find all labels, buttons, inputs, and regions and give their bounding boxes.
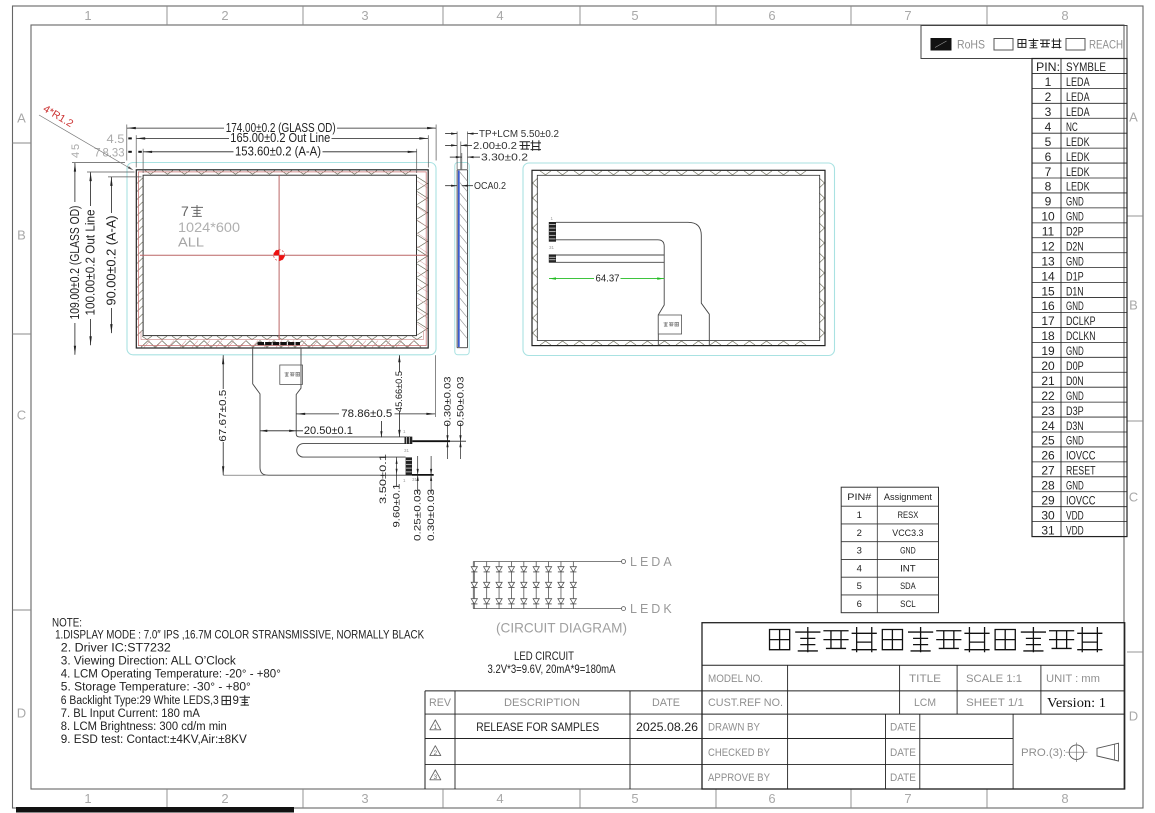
svg-text:5: 5 [1045,135,1052,149]
svg-text:15: 15 [1041,284,1055,298]
svg-text:GND: GND [1066,254,1084,268]
svg-text:Assignment: Assignment [884,492,932,503]
svg-text:2: 2 [433,750,437,757]
svg-text:16: 16 [1041,299,1055,313]
svg-text:RELEASE FOR SAMPLES: RELEASE FOR SAMPLES [476,722,599,734]
svg-text:D2P: D2P [1066,225,1084,239]
svg-text:31: 31 [412,477,418,482]
svg-text:3: 3 [1045,105,1052,119]
svg-text:8: 8 [1061,8,1068,23]
svg-text:20.50±0.1: 20.50±0.1 [304,425,353,437]
svg-text:INT: INT [900,563,916,574]
svg-text:18: 18 [1041,329,1055,343]
svg-text:3: 3 [857,546,862,557]
svg-text:GND: GND [1066,299,1084,313]
svg-text:2: 2 [857,528,862,539]
svg-text:8.33: 8.33 [103,146,125,160]
svg-text:8: 8 [1061,791,1068,806]
svg-text:IOVCC: IOVCC [1066,449,1096,463]
svg-text:LEDK: LEDK [1066,180,1090,194]
svg-text:7: 7 [181,203,189,219]
svg-text:Version: 1: Version: 1 [1047,695,1106,710]
svg-text:D1P: D1P [1066,269,1084,283]
svg-text:26: 26 [1041,449,1055,463]
svg-text:5: 5 [631,8,638,23]
svg-text:GND: GND [1066,195,1084,209]
svg-text:4.5: 4.5 [107,132,125,146]
svg-text:19: 19 [1041,344,1055,358]
svg-text:LEDA: LEDA [630,555,675,569]
svg-text:OCA0.2: OCA0.2 [474,181,506,192]
svg-text:3.50±0.1: 3.50±0.1 [378,454,388,504]
svg-text:GND: GND [1066,389,1084,403]
svg-text:D1N: D1N [1066,284,1084,298]
svg-text:SDA: SDA [900,581,916,592]
svg-text:DATE: DATE [890,722,916,734]
svg-text:D: D [1129,709,1138,724]
svg-text:6: 6 [768,8,775,23]
svg-text:LCM: LCM [914,697,936,709]
svg-text:PRO.(3):: PRO.(3): [1021,747,1066,759]
svg-text:LEDA: LEDA [1066,105,1090,119]
svg-text:0.30±0.03: 0.30±0.03 [426,489,436,541]
svg-text:DATE: DATE [652,697,680,709]
svg-text:PIN#: PIN# [847,492,872,503]
svg-text:7: 7 [904,791,911,806]
svg-text:RoHS: RoHS [957,38,985,52]
svg-text:1: 1 [84,8,91,23]
svg-text:31: 31 [1041,523,1055,537]
svg-text:CHECKED BY: CHECKED BY [708,747,771,759]
svg-text:DATE: DATE [890,772,916,784]
svg-text:1: 1 [84,791,91,806]
svg-text:LEDK: LEDK [1066,150,1090,164]
svg-text:2: 2 [221,791,228,806]
svg-text:B: B [1129,298,1138,313]
svg-text:3.30±0.2: 3.30±0.2 [481,153,528,164]
svg-text:D3P: D3P [1066,404,1084,418]
svg-text:2: 2 [221,8,228,23]
svg-text:DCLKP: DCLKP [1066,314,1096,328]
svg-text:8. LCM Brightness: 300 cd/m m: 8. LCM Brightness: 300 cd/m min [61,721,227,733]
svg-text:9: 9 [233,695,239,707]
svg-text:D0P: D0P [1066,359,1084,373]
svg-text:1: 1 [857,510,862,521]
svg-text:29: 29 [1041,493,1055,507]
svg-text:10: 10 [1041,210,1055,224]
svg-text:5. Storage Temperature: -30° -: 5. Storage Temperature: -30° - +80° [61,682,251,694]
svg-text:A: A [17,111,26,126]
svg-text:24: 24 [1041,419,1055,433]
svg-text:17: 17 [1041,314,1055,328]
svg-text:30: 30 [1041,508,1055,522]
svg-text:6 Backlight Type:29 White LEDS: 6 Backlight Type:29 White LEDS,3 [61,695,219,707]
svg-text:7: 7 [1045,165,1052,179]
svg-text:78.86±0.5: 78.86±0.5 [341,408,392,420]
svg-text:SCL: SCL [900,599,916,610]
svg-text:31: 31 [549,245,555,250]
svg-text:2. Driver IC:ST7232: 2. Driver IC:ST7232 [61,642,171,654]
svg-text:GND: GND [1066,479,1084,493]
svg-text:2: 2 [1045,90,1052,104]
svg-text:SCALE 1:1: SCALE 1:1 [966,673,1022,685]
svg-text:NC: NC [1066,120,1078,134]
svg-text:TITLE: TITLE [909,673,941,685]
svg-text:D3N: D3N [1066,419,1084,433]
svg-text:LEDK: LEDK [630,602,675,616]
svg-text:SHEET 1/1: SHEET 1/1 [966,697,1024,709]
svg-text:64.37: 64.37 [596,273,620,284]
svg-text:100.00±0.2 Out Line: 100.00±0.2 Out Line [83,210,98,316]
svg-text:4. LCM Operating Temperature:: 4. LCM Operating Temperature: -20° - +80… [61,669,281,681]
svg-text:DRAWN BY: DRAWN BY [708,722,761,734]
svg-text:3: 3 [361,8,368,23]
svg-text:1.DISPLAY MODE : 7.0″ IPS ,16.: 1.DISPLAY MODE : 7.0″ IPS ,16.7M COLOR S… [55,629,424,641]
svg-text:LEDK: LEDK [1066,135,1090,149]
svg-text:27: 27 [1041,464,1055,478]
svg-text:1: 1 [1045,75,1052,89]
svg-text:GND: GND [1066,344,1084,358]
svg-text:0.50±0.03: 0.50±0.03 [455,377,465,427]
svg-text:21: 21 [1041,374,1055,388]
svg-text:8: 8 [1045,180,1052,194]
svg-text:5: 5 [857,581,862,592]
svg-text:VCC3.3: VCC3.3 [892,528,923,539]
svg-text:153.60±0.2 (A-A): 153.60±0.2 (A-A) [235,143,321,158]
svg-text:A: A [1129,110,1138,125]
svg-text:6: 6 [768,791,775,806]
svg-text:VDD: VDD [1066,508,1084,522]
svg-text:9.60±0.1: 9.60±0.1 [392,484,402,528]
svg-text:LEDA: LEDA [1066,90,1090,104]
svg-text:0.30±0.03: 0.30±0.03 [442,377,452,427]
svg-text:CUST.REF NO.: CUST.REF NO. [708,697,783,709]
svg-text:REV: REV [429,697,452,709]
svg-text:3. Viewing Direction: ALL O’Cl: 3. Viewing Direction: ALL O’Clock [61,656,236,668]
svg-text:(CIRCUIT DIAGRAM): (CIRCUIT DIAGRAM) [496,620,627,636]
svg-text:D0N: D0N [1066,374,1084,388]
svg-text:7: 7 [904,8,911,23]
svg-text:3: 3 [433,774,437,781]
svg-text:90.00±0.2 (A-A): 90.00±0.2 (A-A) [103,216,118,306]
svg-text:23: 23 [1041,404,1055,418]
svg-text:67.67±0.5: 67.67±0.5 [218,389,229,442]
svg-text:31: 31 [404,448,410,453]
svg-text:14: 14 [1041,269,1055,283]
svg-text:11: 11 [1042,225,1055,239]
svg-text:GND: GND [1066,210,1084,224]
svg-text:RESX: RESX [898,510,919,521]
svg-text:TP+LCM 5.50±0.2: TP+LCM 5.50±0.2 [479,129,559,140]
svg-text:D: D [17,706,26,721]
svg-text:0.25±0.03: 0.25±0.03 [413,489,423,541]
svg-text:C: C [1129,490,1138,505]
svg-text:12: 12 [1041,239,1055,253]
svg-text:SYMBLE: SYMBLE [1066,60,1106,74]
svg-text:VDD: VDD [1066,523,1084,537]
svg-text:3.2V*3=9.6V, 20mA*9=180mA: 3.2V*3=9.6V, 20mA*9=180mA [488,662,616,676]
svg-text:4: 4 [1045,120,1052,134]
svg-text:DCLKN: DCLKN [1066,329,1096,343]
svg-text:6: 6 [857,599,862,610]
svg-text:2.00±0.2: 2.00±0.2 [473,141,517,152]
svg-text:20: 20 [1041,359,1055,373]
svg-text:RESET: RESET [1066,464,1096,478]
svg-text:4: 4 [496,791,503,806]
svg-text:1: 1 [433,724,437,731]
svg-text:LEDK: LEDK [1066,165,1090,179]
svg-text:NOTE:: NOTE: [52,617,82,629]
svg-text:DESCRIPTION: DESCRIPTION [504,697,580,709]
svg-text:9. ESD test: Contact:±4KV,Air:: 9. ESD test: Contact:±4KV,Air:±8KV [61,734,247,746]
svg-text:IOVCC: IOVCC [1066,493,1096,507]
svg-text:D2N: D2N [1066,239,1084,253]
svg-text:7. BL Input Current: 180 mA: 7. BL Input Current: 180 mA [61,708,200,720]
svg-text:25: 25 [1041,434,1055,448]
svg-text:LEDA: LEDA [1066,75,1090,89]
svg-text:45.66±0.5: 45.66±0.5 [394,371,405,412]
svg-text:GND: GND [900,546,916,557]
svg-text:MODEL NO.: MODEL NO. [708,673,763,685]
svg-text:GND: GND [1066,434,1084,448]
svg-text:9: 9 [1045,195,1052,209]
svg-text:2025.08.26: 2025.08.26 [636,720,698,734]
svg-text:PIN:: PIN: [1036,60,1060,74]
svg-text:5: 5 [631,791,638,806]
svg-text:13: 13 [1041,254,1055,268]
svg-text:4: 4 [496,8,503,23]
svg-text:1024*600: 1024*600 [178,219,240,235]
svg-text:3: 3 [361,791,368,806]
svg-text:REACH: REACH [1089,38,1123,52]
svg-text:ALL: ALL [178,235,204,250]
svg-text:B: B [17,228,26,243]
svg-text:28: 28 [1041,479,1055,493]
svg-text:6: 6 [1045,150,1052,164]
svg-text:109.00±0.2 (GLASS OD): 109.00±0.2 (GLASS OD) [67,206,82,320]
svg-text:DATE: DATE [890,747,916,759]
svg-text:5: 5 [70,144,82,150]
svg-text:LED CIRCUIT: LED CIRCUIT [514,649,575,663]
svg-text:C: C [17,408,26,423]
svg-text:APPROVE BY: APPROVE BY [708,772,771,784]
svg-text:UNIT : mm: UNIT : mm [1046,673,1100,685]
svg-text:4: 4 [70,152,82,158]
svg-text:22: 22 [1041,389,1055,403]
svg-text:4: 4 [857,563,862,574]
